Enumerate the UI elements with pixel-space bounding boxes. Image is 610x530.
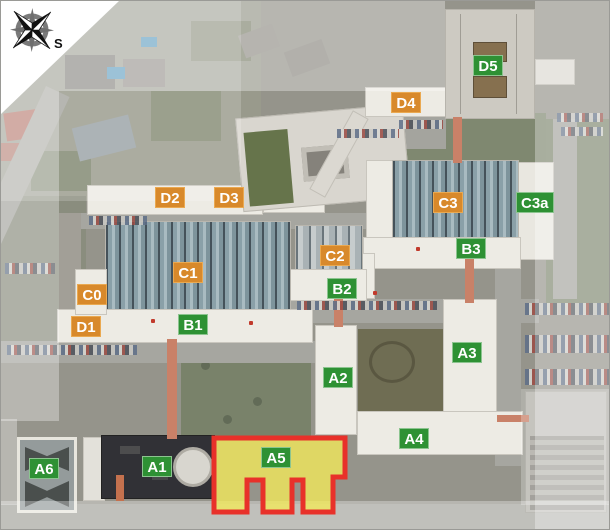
building-label-d2[interactable]: D2 (155, 187, 185, 208)
building-label-c3a[interactable]: C3a (516, 192, 554, 213)
campus-map: D2D3D4D5C0C1C2C3C3aD1B1B2B3A1A2A3A4A5A6 … (0, 0, 610, 530)
building-label-c0[interactable]: C0 (77, 284, 107, 305)
building-label-d1[interactable]: D1 (71, 316, 101, 337)
building-label-a2[interactable]: A2 (323, 367, 353, 388)
building-label-c3[interactable]: C3 (433, 192, 463, 213)
compass-corner: S (1, 1, 141, 126)
building-label-a3[interactable]: A3 (452, 342, 482, 363)
building-label-a5[interactable]: A5 (261, 447, 291, 468)
building-label-a6[interactable]: A6 (29, 458, 59, 479)
building-label-a4[interactable]: A4 (399, 428, 429, 449)
building-label-c1[interactable]: C1 (173, 262, 203, 283)
building-label-d5[interactable]: D5 (473, 55, 503, 76)
building-label-c2[interactable]: C2 (320, 245, 350, 266)
building-label-a1[interactable]: A1 (142, 456, 172, 477)
building-label-b2[interactable]: B2 (327, 278, 357, 299)
building-label-b1[interactable]: B1 (178, 314, 208, 335)
building-label-b3[interactable]: B3 (456, 238, 486, 259)
building-label-d3[interactable]: D3 (214, 187, 244, 208)
building-label-d4[interactable]: D4 (391, 92, 421, 113)
compass-south-label: S (54, 36, 63, 51)
